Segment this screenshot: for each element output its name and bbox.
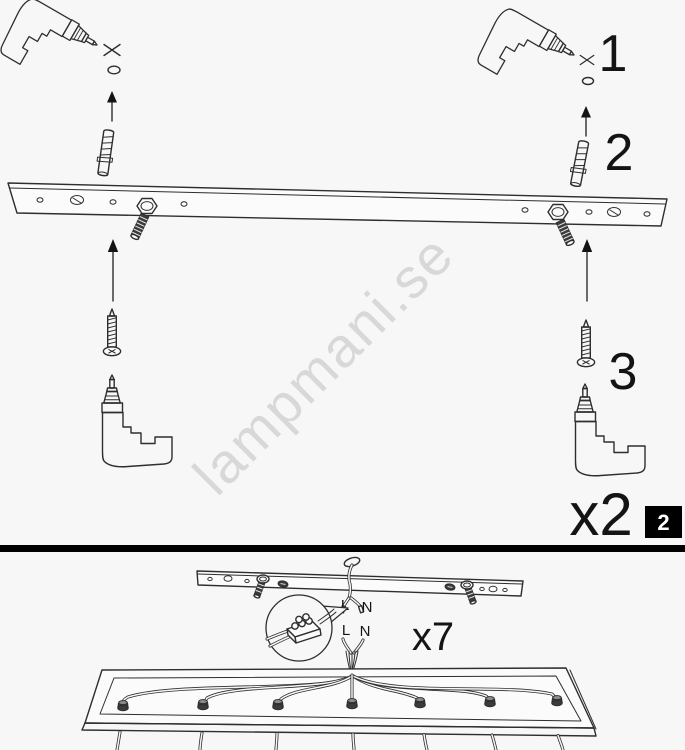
wall-plug-illustration-right [568,140,591,188]
cable-gland [347,699,357,709]
arrow-up-icon [107,91,117,121]
wall-plug-illustration-left [95,129,116,177]
supply-neutral-label: N [362,599,373,616]
watermark: lampmani.se [181,222,466,507]
assembly-instruction-page: lampmani.se 1 2 3 [0,0,685,750]
drill-illustration-top-right [473,5,578,103]
fixture-live-label: L [342,622,350,639]
cable-gland [198,700,208,710]
arrow-up-icon [581,106,591,136]
page-number: 2 [657,510,669,535]
section-divider [0,545,685,552]
cable-gland [118,701,128,711]
arrow-up-icon [108,239,118,301]
ceiling-bracket-rail [197,571,523,605]
quantity-x2-label: x2 [569,481,632,545]
arrow-up-icon [582,239,592,301]
drill-illustration-top-left [0,0,102,93]
page-number-badge: 2 [645,506,682,538]
mounting-bracket-rail [8,183,667,246]
canopy-base [82,668,596,736]
cable-gland [415,698,425,708]
drilled-hole-left [108,66,120,74]
pilot-hole-cross-mark-left [104,45,120,56]
screw-illustration-right [577,320,594,367]
terminal-block-magnifier [266,595,348,661]
pilot-hole-cross-mark-right [580,55,594,64]
mounting-steps-diagram: lampmani.se 1 2 3 [0,0,685,545]
screw-illustration-left [103,309,120,356]
cable-gland [485,697,495,707]
wiring-diagram: L N L N [0,552,685,750]
step-3-label: 3 [609,343,638,401]
drilled-hole-right [583,78,594,85]
quantity-x7-label: x7 [412,615,454,659]
step-1-label: 1 [599,25,628,83]
drill-illustration-bottom-left [102,375,172,467]
fixture-neutral-label: N [360,623,371,640]
cable-gland [273,700,283,710]
cable-gland [552,696,562,706]
step-2-label: 2 [605,124,634,182]
